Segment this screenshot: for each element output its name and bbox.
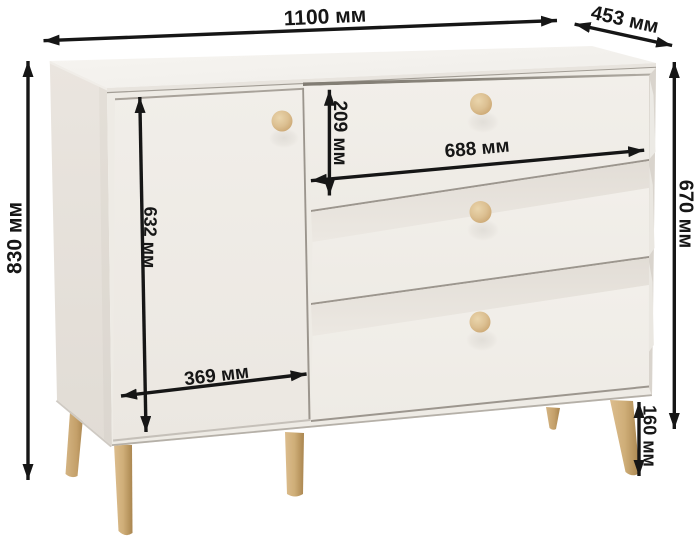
svg-text:160 мм: 160 мм xyxy=(640,405,660,467)
svg-text:632 мм: 632 мм xyxy=(139,206,160,268)
svg-text:830 мм: 830 мм xyxy=(4,202,27,274)
svg-text:209 мм: 209 мм xyxy=(329,100,350,165)
svg-text:670 мм: 670 мм xyxy=(675,180,697,249)
svg-text:1100 мм: 1100 мм xyxy=(283,3,366,30)
